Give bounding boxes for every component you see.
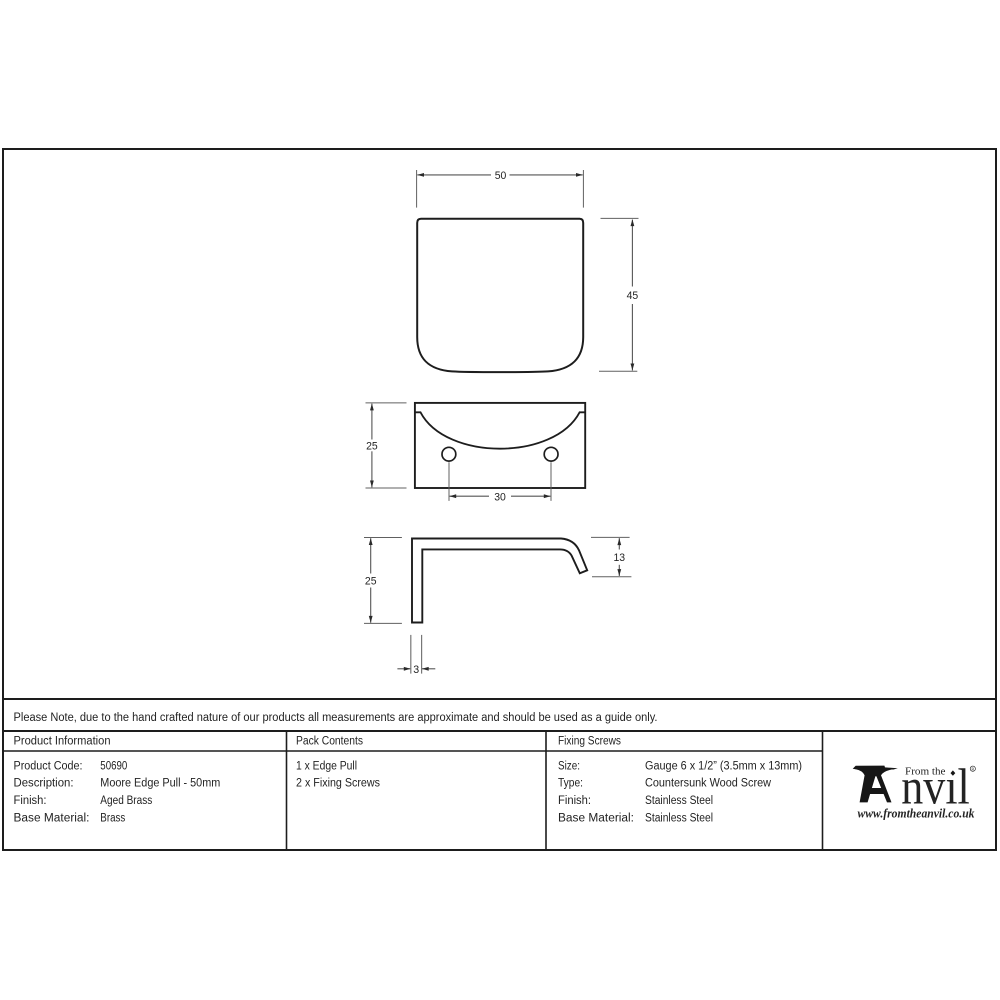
- svg-text:Finish:: Finish:: [558, 795, 591, 807]
- svg-text:30: 30: [494, 491, 506, 503]
- svg-text:25: 25: [365, 576, 377, 588]
- svg-text:Please Note, due to the hand c: Please Note, due to the hand crafted nat…: [14, 712, 658, 724]
- svg-text:25: 25: [366, 440, 378, 452]
- svg-text:Product Information: Product Information: [14, 736, 111, 748]
- svg-text:13: 13: [614, 552, 626, 564]
- svg-text:Base Material:: Base Material:: [14, 812, 90, 824]
- svg-text:Product Code:: Product Code:: [14, 760, 83, 772]
- svg-text:Aged Brass: Aged Brass: [100, 795, 152, 807]
- svg-text:Finish:: Finish:: [14, 795, 47, 807]
- svg-text:Stainless Steel: Stainless Steel: [645, 795, 713, 807]
- svg-text:50690: 50690: [100, 760, 127, 772]
- svg-text:Pack Contents: Pack Contents: [296, 736, 363, 748]
- svg-text:Description:: Description:: [14, 778, 74, 790]
- svg-text:Type:: Type:: [558, 778, 583, 790]
- svg-text:Moore Edge Pull - 50mm: Moore Edge Pull - 50mm: [100, 778, 220, 790]
- svg-text:Gauge 6 x 1/2” (3.5mm x 13mm): Gauge 6 x 1/2” (3.5mm x 13mm): [645, 760, 802, 772]
- svg-text:R: R: [971, 766, 974, 771]
- svg-text:Stainless Steel: Stainless Steel: [645, 812, 713, 824]
- svg-text:45: 45: [627, 290, 639, 302]
- svg-text:Base Material:: Base Material:: [558, 812, 634, 824]
- svg-text:Brass: Brass: [100, 812, 125, 824]
- svg-text:1 x Edge Pull: 1 x Edge Pull: [296, 760, 357, 772]
- svg-text:Countersunk Wood Screw: Countersunk Wood Screw: [645, 778, 772, 790]
- svg-text:2 x Fixing Screws: 2 x Fixing Screws: [296, 778, 380, 790]
- svg-text:3: 3: [413, 664, 419, 676]
- svg-text:www.fromtheanvil.co.uk: www.fromtheanvil.co.uk: [858, 806, 975, 821]
- svg-text:50: 50: [495, 170, 507, 182]
- svg-text:Size:: Size:: [558, 760, 580, 772]
- svg-text:Fixing Screws: Fixing Screws: [558, 736, 621, 748]
